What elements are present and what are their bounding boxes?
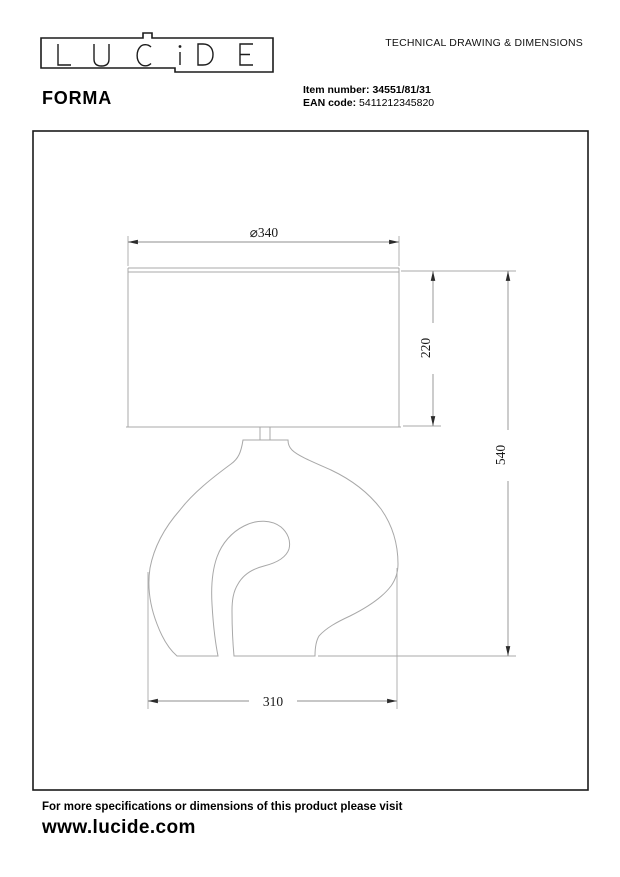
dim-shade-diameter-label: ⌀340 [250,225,279,240]
dim-total-height: 540 [493,271,508,656]
extension-lines [128,236,516,709]
dim-base-width-label: 310 [263,694,284,709]
dim-shade-height: 220 [418,271,433,426]
dim-shade-diameter: ⌀340 [128,225,399,242]
technical-drawing: ⌀340 220 540 310 [0,0,620,877]
dim-total-height-label: 540 [493,445,508,466]
dim-shade-height-label: 220 [418,338,433,359]
lamp-shade [126,268,401,427]
spec-sheet-page: LUCIDE TECHNICAL DRAWING & DIMENSIONS FO… [0,0,620,877]
dim-base-width: 310 [148,694,397,709]
footer-note: For more specifications or dimensions of… [42,801,402,813]
lamp-base-outline [149,440,398,656]
footer-website: www.lucide.com [42,817,196,839]
lamp-stem [260,427,270,440]
